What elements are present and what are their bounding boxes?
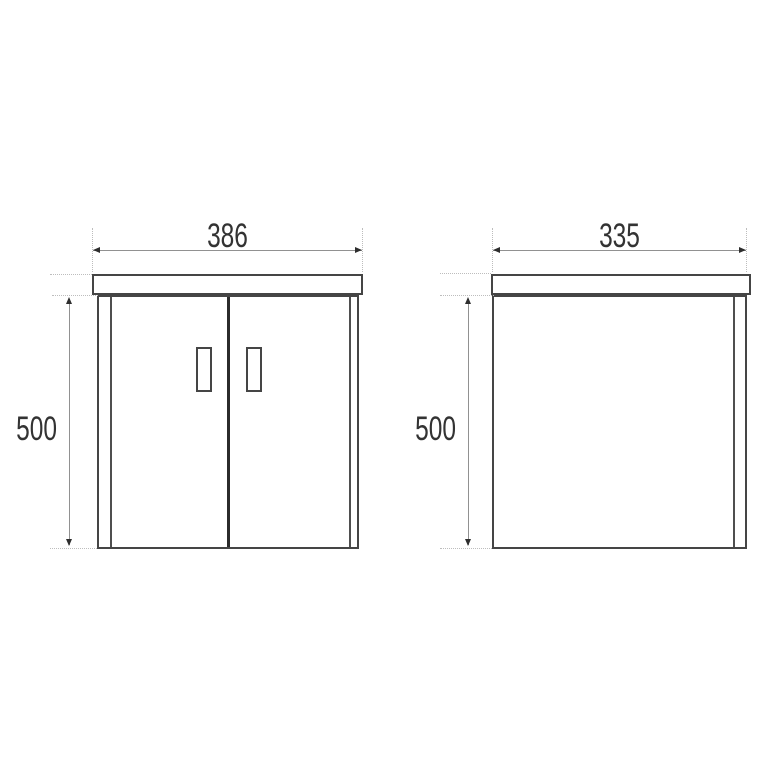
front-width-label: 386	[131, 219, 325, 253]
extension-line	[362, 228, 363, 272]
extension-line	[50, 274, 92, 275]
front-right-panel-line	[349, 297, 351, 547]
arrowhead-left-icon	[493, 247, 500, 253]
dimension-line	[468, 299, 469, 545]
extension-line	[440, 548, 492, 549]
front-left-panel-line	[110, 297, 112, 547]
side-countertop	[491, 274, 751, 295]
arrowhead-right-icon	[355, 247, 362, 253]
arrowhead-down-icon	[66, 539, 72, 546]
side-height-label: 500	[415, 412, 456, 446]
side-depth-label: 335	[528, 219, 710, 253]
extension-line	[440, 295, 494, 296]
arrowhead-right-icon	[739, 247, 746, 253]
dimension-line	[69, 299, 70, 545]
extension-line	[52, 295, 98, 296]
arrowhead-up-icon	[66, 297, 72, 304]
extension-line	[50, 548, 97, 549]
side-cabinet-body	[492, 295, 747, 549]
extension-line	[440, 273, 491, 274]
side-back-panel-line	[733, 297, 735, 547]
arrowhead-up-icon	[465, 297, 471, 304]
arrowhead-down-icon	[465, 539, 471, 546]
right-door-handle	[246, 347, 262, 392]
front-height-label: 500	[16, 412, 57, 446]
left-door-handle	[196, 347, 212, 392]
drawing-canvas: 386 500 335 500	[0, 0, 768, 768]
front-door-divider	[227, 297, 230, 547]
front-countertop	[92, 274, 363, 295]
extension-line	[746, 228, 747, 272]
arrowhead-left-icon	[93, 247, 100, 253]
